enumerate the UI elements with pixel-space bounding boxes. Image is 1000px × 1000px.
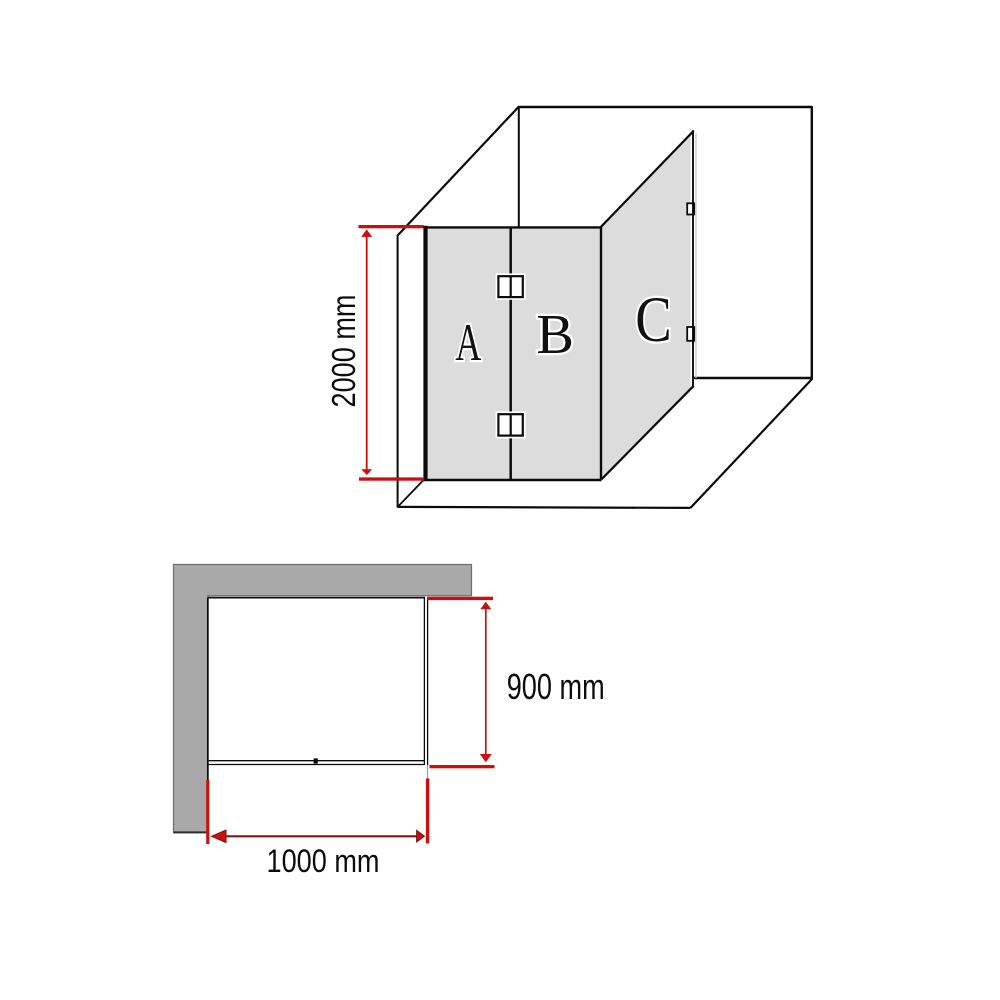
svg-text:1000 mm: 1000 mm (267, 843, 380, 879)
svg-text:900 mm: 900 mm (507, 666, 605, 707)
svg-text:B: B (536, 304, 574, 366)
svg-text:A: A (455, 314, 481, 372)
svg-text:C: C (635, 284, 672, 356)
svg-text:2000 mm: 2000 mm (326, 295, 363, 408)
